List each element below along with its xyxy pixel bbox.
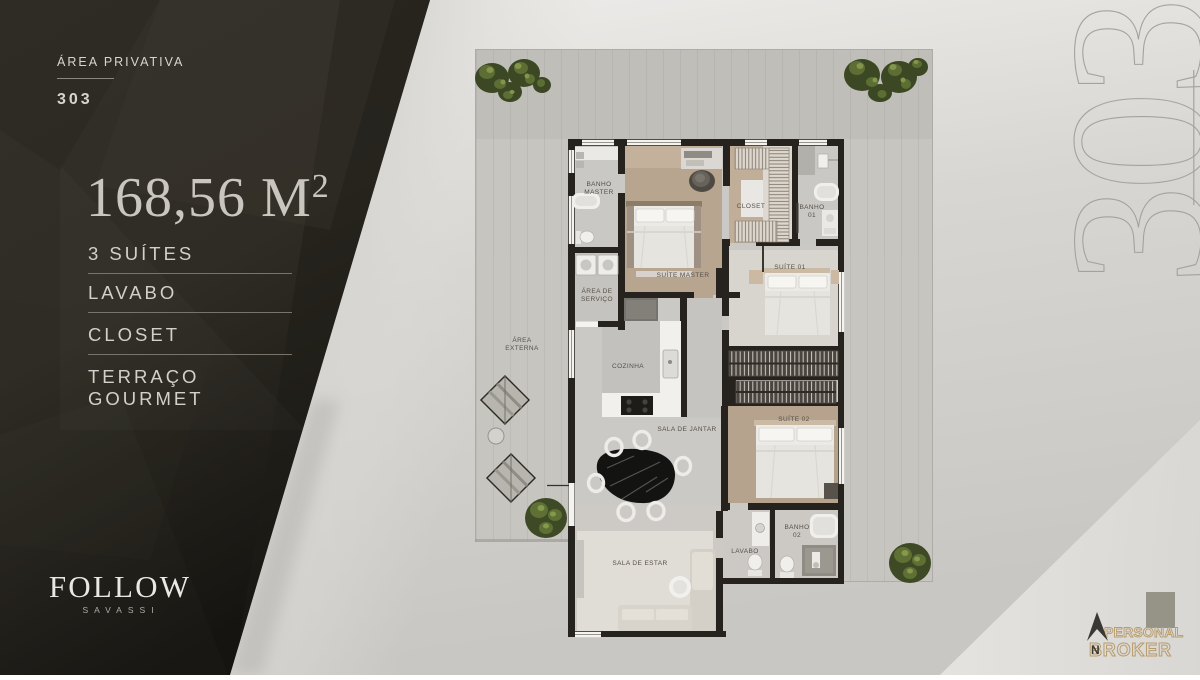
svg-text:SAVASSI: SAVASSI [82,605,159,615]
svg-text:BANHO: BANHO [586,181,611,188]
svg-text:PERSONAL: PERSONAL [1104,624,1184,640]
svg-text:TERRAÇO: TERRAÇO [88,366,199,387]
svg-text:168,56 M2: 168,56 M2 [86,167,330,229]
svg-text:01: 01 [808,212,816,219]
svg-text:SUÍTE 01: SUÍTE 01 [774,262,805,271]
svg-text:COZINHA: COZINHA [612,363,644,370]
svg-text:BANHO: BANHO [799,204,824,211]
svg-text:LAVABO: LAVABO [731,548,758,555]
svg-text:LAVABO: LAVABO [88,282,177,303]
svg-text:ÁREA DE: ÁREA DE [582,286,613,295]
svg-text:SALA DE ESTAR: SALA DE ESTAR [612,560,667,567]
svg-text:SUÍTE 02: SUÍTE 02 [778,414,809,423]
svg-text:303: 303 [57,91,93,108]
svg-text:BANHO: BANHO [784,524,809,531]
svg-text:3 SUÍTES: 3 SUÍTES [88,243,194,264]
svg-text:303: 303 [1030,3,1200,285]
svg-text:EXTERNA: EXTERNA [505,345,539,352]
svg-text:CLOSET: CLOSET [737,203,765,210]
svg-text:SERVIÇO: SERVIÇO [581,296,613,303]
svg-text:BROKER: BROKER [1089,640,1172,660]
svg-text:GOURMET: GOURMET [88,388,204,409]
svg-text:SALA DE JANTAR: SALA DE JANTAR [657,426,716,433]
svg-text:SUÍTE MASTER: SUÍTE MASTER [657,270,710,279]
svg-text:N: N [1091,643,1100,657]
svg-text:MASTER: MASTER [584,189,614,196]
svg-text:FOLLOW: FOLLOW [49,569,191,604]
svg-text:CLOSET: CLOSET [88,324,180,345]
svg-text:ÁREA: ÁREA [512,335,532,344]
svg-text:ÁREA PRIVATIVA: ÁREA PRIVATIVA [57,54,184,69]
svg-text:02: 02 [793,532,801,539]
